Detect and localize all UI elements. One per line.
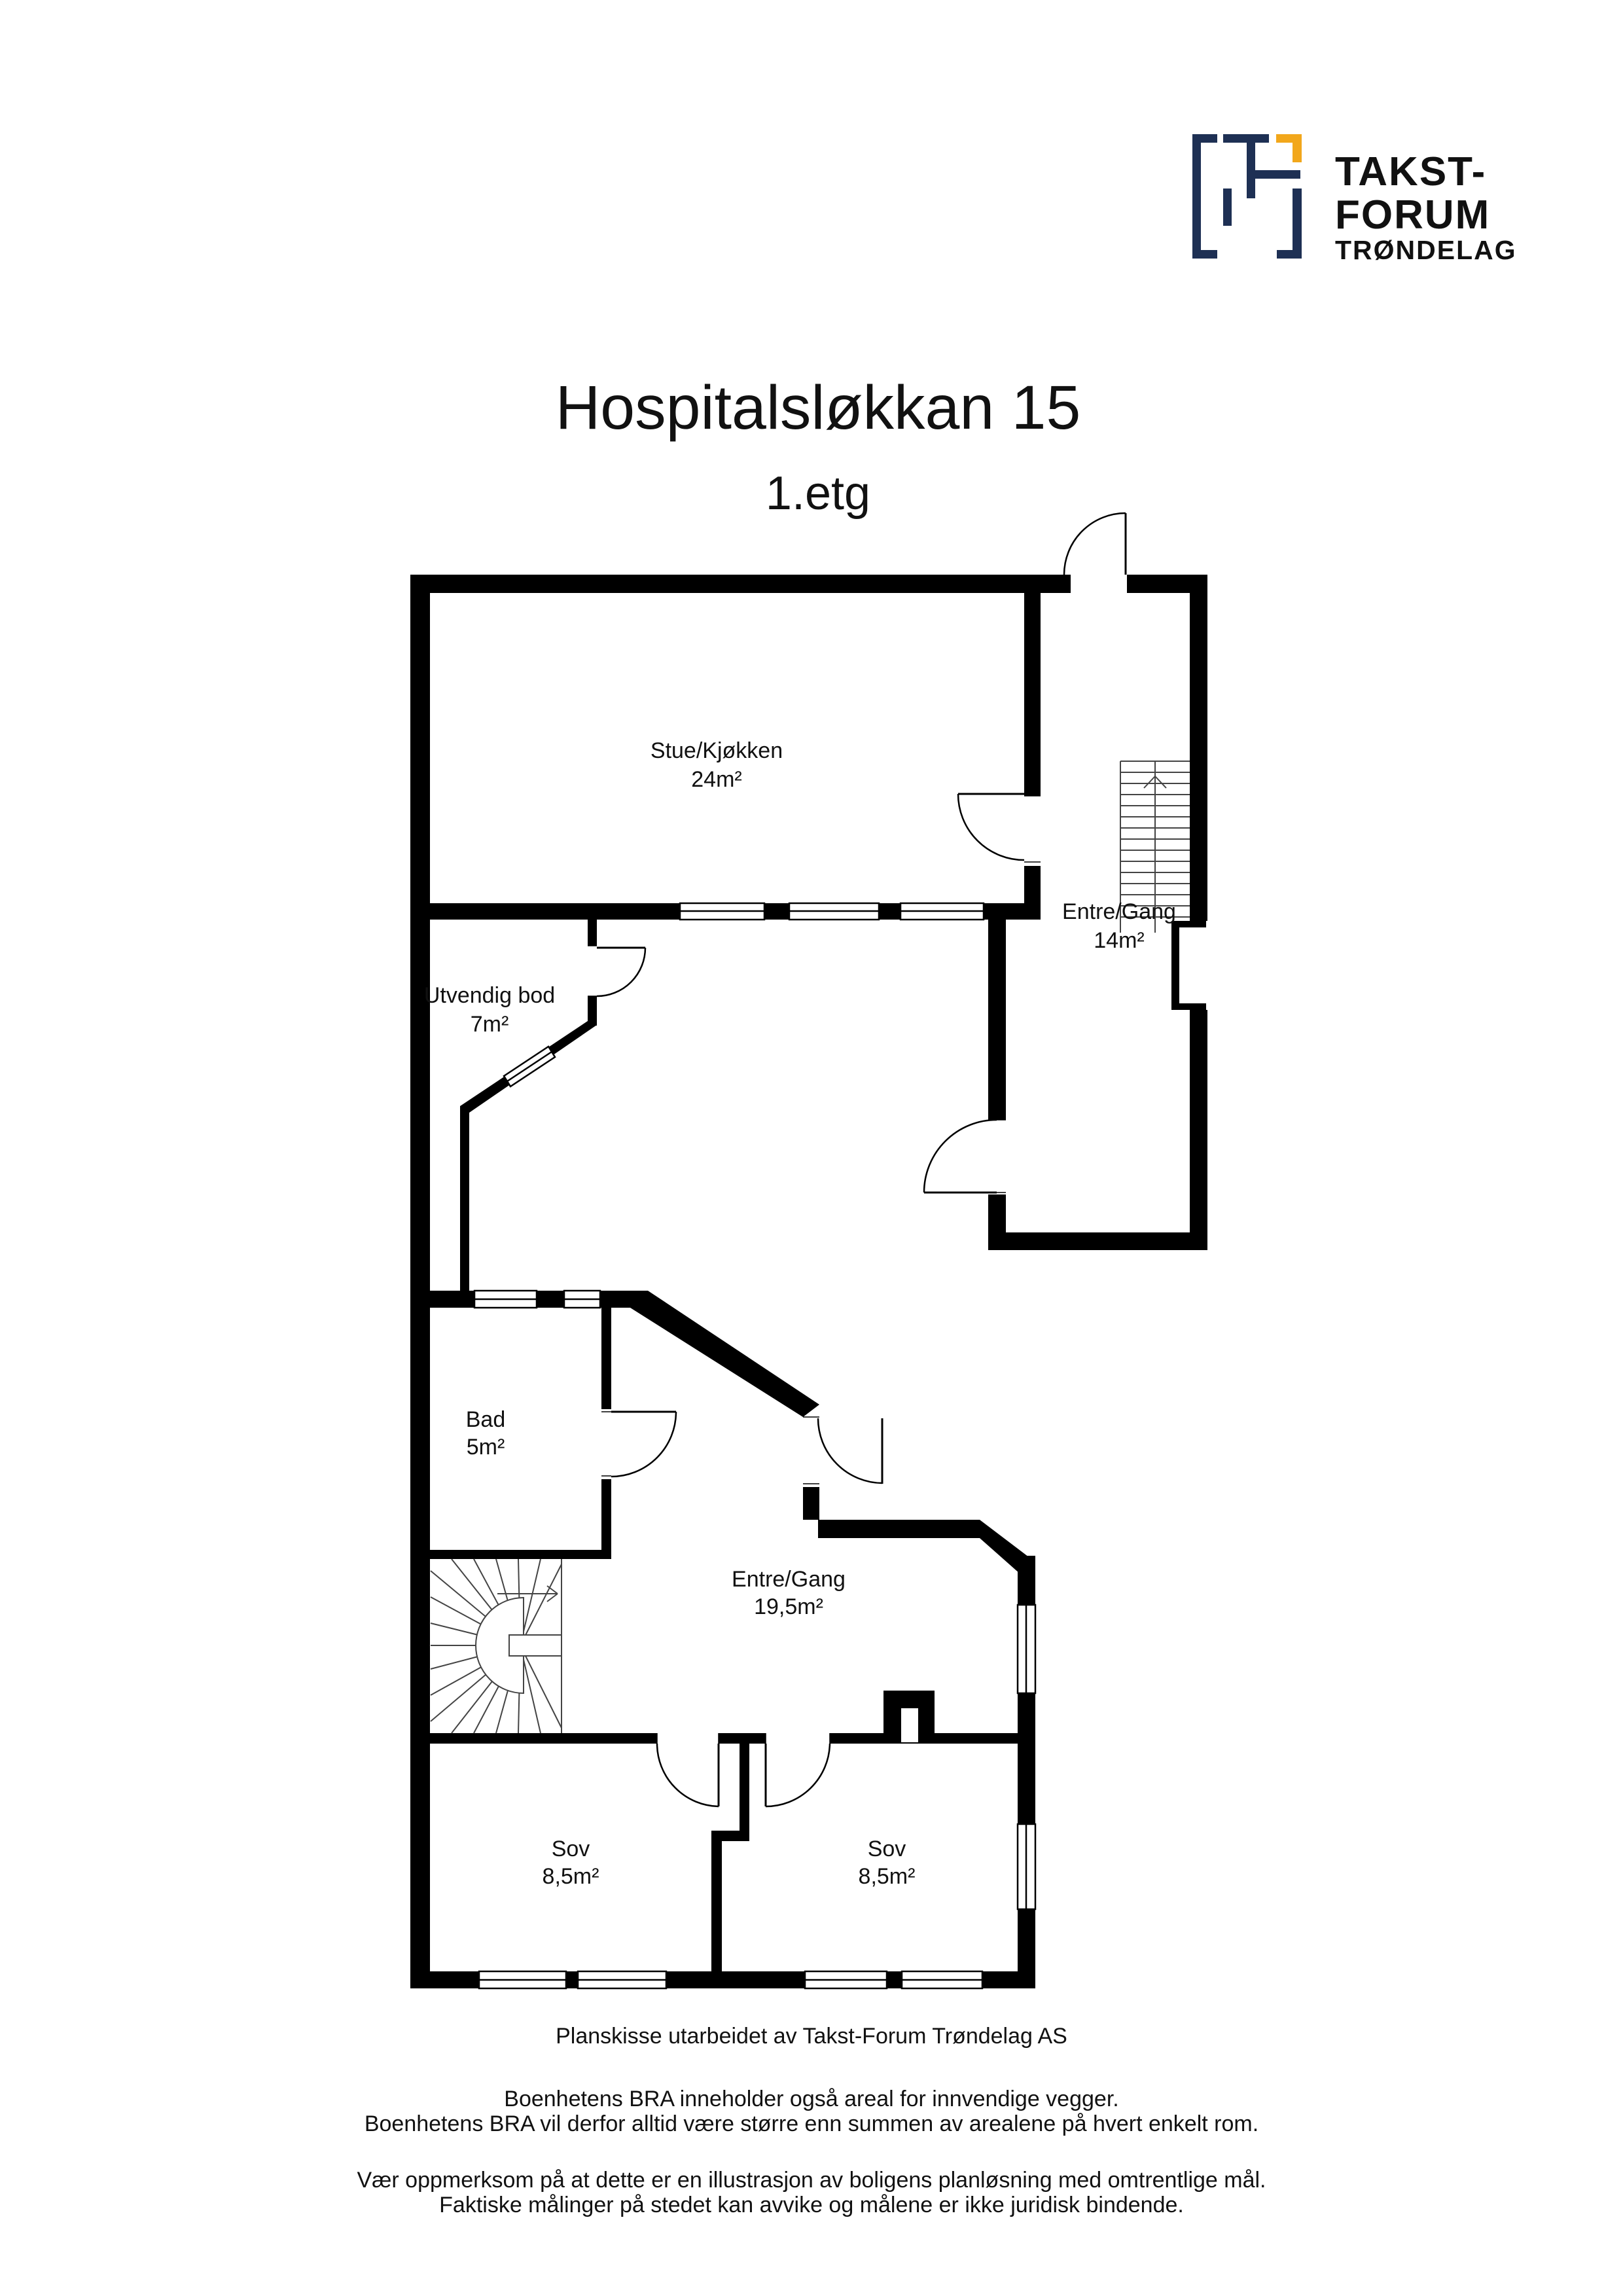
window-stue-2 — [789, 903, 879, 920]
page-title: Hospitalsløkkan 15 — [556, 373, 1081, 442]
door-entre-gang-19 — [818, 1418, 882, 1484]
window-stue-3 — [901, 903, 984, 920]
floor-label: 1.etg — [766, 467, 870, 520]
door-bod — [597, 948, 645, 996]
door-stue — [958, 794, 1024, 860]
window-mid-1 — [474, 1291, 537, 1308]
svg-text:Sov: Sov — [552, 1837, 590, 1861]
room-label-entre-gang-19: Entre/Gang 19,5m² — [732, 1567, 846, 1619]
door-entre-gang-14 — [924, 1120, 997, 1193]
door-bad — [611, 1412, 676, 1477]
window-right-2 — [1018, 1824, 1035, 1909]
window-sov-left-1 — [479, 1971, 566, 1988]
room-label-stue-kjokken: Stue/Kjøkken 24m² — [651, 738, 783, 792]
footer-note-3: Boenhetens BRA vil derfor alltid være st… — [365, 2111, 1258, 2136]
footer-note-4: Vær oppmerksom på at dette er en illustr… — [357, 2168, 1266, 2193]
room-label-utvendig-bod: Utvendig bod 7m² — [424, 983, 555, 1037]
svg-text:Sov: Sov — [868, 1837, 906, 1861]
takst-forum-logo: TAKST- FORUM TRØNDELAG — [1192, 134, 1517, 265]
svg-text:Bad: Bad — [466, 1407, 506, 1432]
room-label-entre-gang-14: Entre/Gang 14m² — [1062, 899, 1176, 953]
doors — [597, 513, 1126, 1806]
svg-text:5m²: 5m² — [467, 1435, 505, 1460]
svg-text:Stue/Kjøkken: Stue/Kjøkken — [651, 738, 783, 763]
svg-text:Entre/Gang: Entre/Gang — [732, 1567, 846, 1592]
footer-note-5: Faktiske målinger på stedet kan avvike o… — [439, 2193, 1184, 2217]
svg-text:8,5m²: 8,5m² — [859, 1864, 916, 1889]
logo-text-3: TRØNDELAG — [1335, 235, 1517, 265]
svg-text:24m²: 24m² — [691, 767, 741, 792]
window-stue-1 — [680, 903, 764, 920]
room-label-bad: Bad 5m² — [466, 1407, 506, 1460]
logo-text-2: FORUM — [1335, 192, 1490, 238]
window-right-1 — [1018, 1605, 1035, 1693]
footer-note-1: Planskisse utarbeidet av Takst-Forum Trø… — [556, 2024, 1067, 2049]
svg-text:19,5m²: 19,5m² — [754, 1594, 823, 1619]
door-sov-right — [766, 1744, 830, 1806]
svg-text:Utvendig bod: Utvendig bod — [424, 983, 555, 1008]
door-entrance-top — [1064, 513, 1126, 575]
window-bod-diagonal — [504, 1047, 555, 1086]
chimney-niche-slot — [901, 1708, 918, 1742]
window-sov-left-2 — [578, 1971, 666, 1988]
stair-direction-arrow — [497, 1586, 558, 1602]
svg-text:8,5m²: 8,5m² — [543, 1864, 599, 1889]
floor-plan-page: TAKST- FORUM TRØNDELAG Hospitalsløkkan 1… — [0, 0, 1623, 2296]
svg-text:14m²: 14m² — [1094, 928, 1144, 953]
walls — [410, 575, 1207, 1988]
window-sov-right-1 — [805, 1971, 887, 1988]
windows — [474, 903, 1035, 1988]
room-label-sov-right: Sov 8,5m² — [859, 1837, 916, 1889]
logo-text-1: TAKST- — [1335, 149, 1486, 194]
window-mid-2 — [564, 1291, 600, 1308]
logo-mark — [1192, 134, 1302, 259]
floor-plan-svg: TAKST- FORUM TRØNDELAG Hospitalsløkkan 1… — [0, 0, 1623, 2296]
door-sov-left — [657, 1744, 719, 1806]
svg-text:7m²: 7m² — [471, 1012, 509, 1037]
window-sov-right-2 — [902, 1971, 982, 1988]
room-label-sov-left: Sov 8,5m² — [543, 1837, 599, 1889]
staircase-winder — [431, 1559, 562, 1733]
logo-yellow-corner — [1276, 134, 1302, 162]
svg-text:Entre/Gang: Entre/Gang — [1062, 899, 1176, 924]
footer-note-2: Boenhetens BRA inneholder også areal for… — [504, 2087, 1118, 2111]
